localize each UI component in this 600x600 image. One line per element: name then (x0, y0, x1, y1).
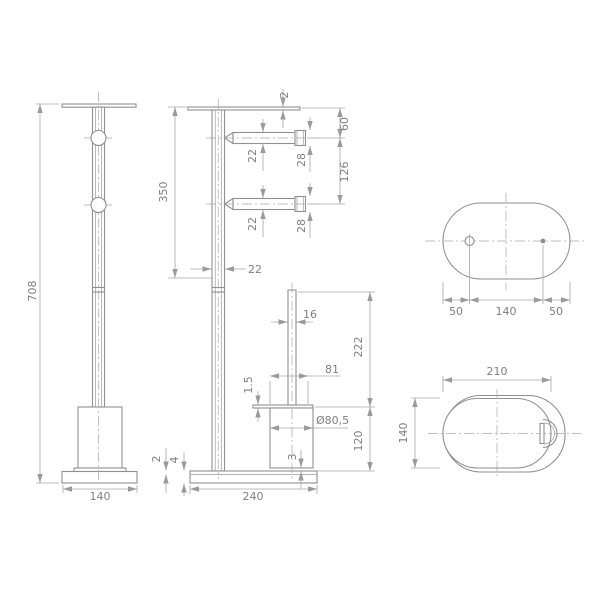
arm-cross-section-bottom (91, 198, 106, 213)
dim-base-lip-thickness: 2 (150, 456, 163, 463)
dim-arm-diameter-1: 22 (246, 149, 259, 163)
dim-cap-diameter-1: 28 (295, 153, 308, 167)
dim-lid-width: 81 (325, 363, 339, 376)
dim-overall-height: 708 (26, 281, 39, 302)
front-view: 708 140 (26, 92, 137, 503)
dim-drop-height: 222 (352, 337, 365, 358)
dim-cup-height: 120 (352, 431, 365, 452)
dim-front-base-width: 140 (90, 490, 111, 503)
dim-arm-spacing: 126 (338, 162, 351, 183)
dim-right-hole-offset: 50 (549, 305, 563, 318)
technical-drawing: 708 140 (0, 0, 600, 600)
dim-post-diameter: 16 (303, 308, 317, 321)
dim-pole-diameter: 22 (248, 263, 262, 276)
dim-upper-section-height: 350 (157, 182, 170, 203)
dim-hole-spacing: 140 (496, 305, 517, 318)
dim-plate-width: 210 (487, 365, 508, 378)
side-view: 2 350 22 22 28 22 28 60 126 (150, 89, 375, 503)
detail-view-plate: 210 140 (397, 365, 581, 478)
dim-top-plate-thickness: 2 (278, 92, 291, 99)
dim-bottom-gap: 3 (286, 454, 299, 461)
dim-cup-diameter: Ø80,5 (316, 414, 349, 427)
arm-cross-section-top (91, 131, 106, 146)
dim-left-hole-offset: 50 (449, 305, 463, 318)
dim-base-length: 240 (243, 490, 264, 503)
dim-base-plate-thickness: 4 (168, 457, 181, 464)
dim-lid-thickness: 1.5 (242, 376, 255, 394)
dim-top-arm-offset: 60 (338, 117, 351, 131)
drawing-canvas: 708 140 (0, 0, 600, 600)
dim-cap-diameter-2: 28 (295, 219, 308, 233)
dim-plate-depth: 140 (397, 423, 410, 444)
dim-arm-diameter-2: 22 (246, 217, 259, 231)
center-pin (541, 239, 546, 244)
top-view-base: 50 140 50 (425, 193, 587, 318)
